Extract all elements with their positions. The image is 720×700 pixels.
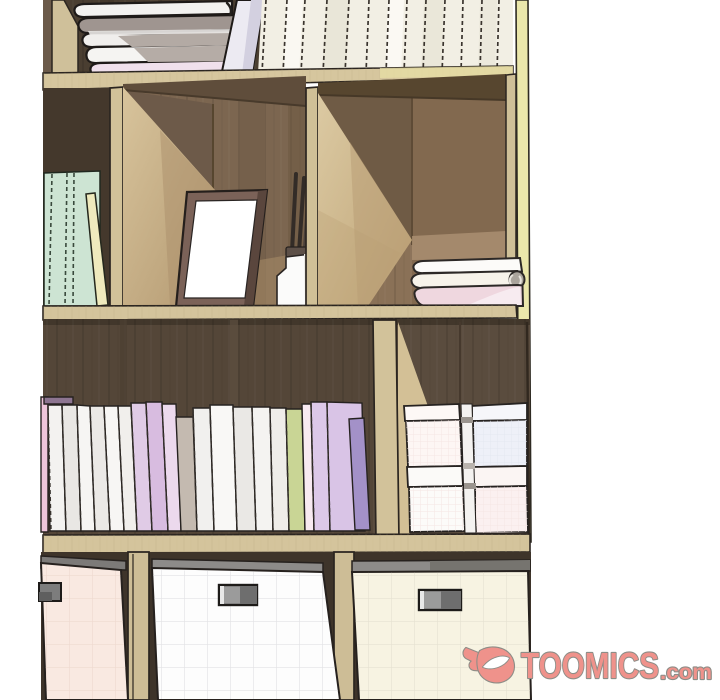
svg-text:TOOMICS: TOOMICS — [521, 645, 659, 686]
svg-text:.com: .com — [660, 661, 712, 684]
